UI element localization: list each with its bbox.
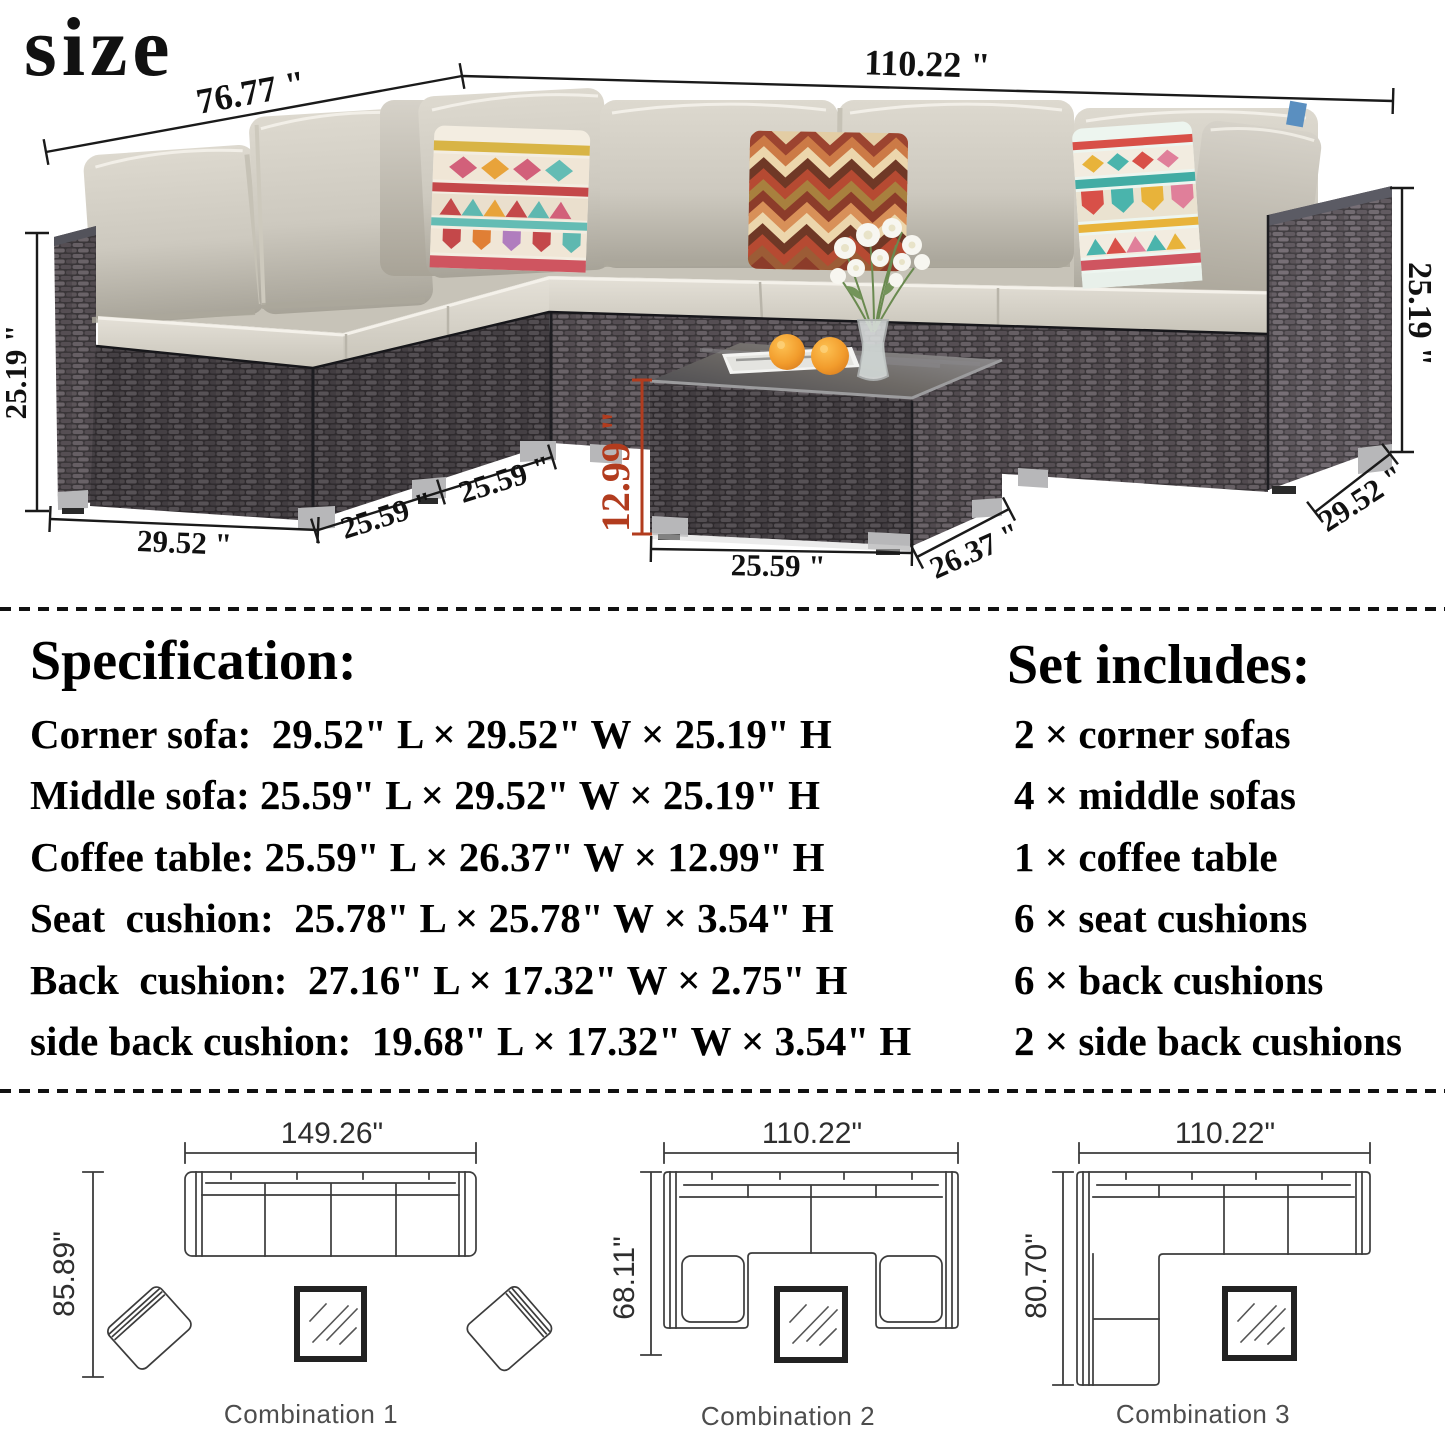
svg-text:size: size (24, 1, 175, 94)
svg-text:149.26": 149.26" (281, 1117, 383, 1150)
svg-text:Combination 2: Combination 2 (701, 1401, 875, 1431)
svg-text:80.70": 80.70" (1020, 1233, 1053, 1319)
svg-text:12.99 ": 12.99 " (593, 410, 638, 532)
svg-text:110.22": 110.22" (1175, 1117, 1275, 1150)
svg-text:85.89": 85.89" (48, 1231, 81, 1317)
svg-text:25.19 ": 25.19 " (0, 325, 33, 420)
svg-text:68.11": 68.11" (608, 1236, 641, 1320)
svg-text:25.19 ": 25.19 " (1401, 262, 1438, 366)
svg-text:76.77 ": 76.77 " (193, 63, 308, 122)
svg-text:Combination 1: Combination 1 (224, 1399, 398, 1429)
svg-text:110.22 ": 110.22 " (864, 42, 991, 86)
svg-text:25.59 ": 25.59 " (731, 547, 826, 583)
svg-text:110.22": 110.22" (762, 1117, 862, 1150)
svg-text:29.52 ": 29.52 " (136, 523, 232, 562)
svg-text:Combination 3: Combination 3 (1116, 1399, 1290, 1429)
